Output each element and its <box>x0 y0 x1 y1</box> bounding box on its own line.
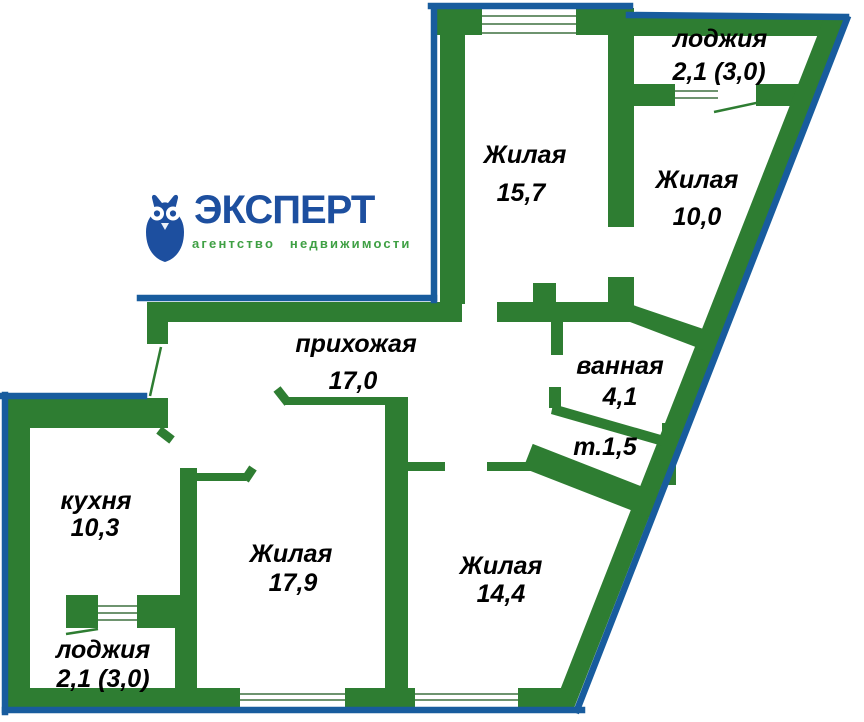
room-name-living-3: Жилая <box>248 540 333 568</box>
room-name-loggia-top: лоджия <box>672 25 768 53</box>
floor-plan-page: ЭКСПЕРТ агентство недвижимости <box>0 0 864 722</box>
room-area-loggia-top: 2,1 (3,0) <box>671 58 765 86</box>
window-living-4 <box>415 688 518 708</box>
room-name-toilet: т.1,5 <box>573 433 638 461</box>
kitchen-balcony-door-swing <box>66 629 98 634</box>
room-labels: Жилая 15,7 лоджия 2,1 (3,0) Жилая 10,0 п… <box>55 25 768 693</box>
room-area-living-4: 14,4 <box>477 580 526 608</box>
room-name-living-1: Жилая <box>482 141 567 169</box>
room-area-bathroom: 4,1 <box>602 383 638 411</box>
window-living-1 <box>482 8 576 35</box>
room-name-bathroom: ванная <box>576 352 664 380</box>
room-area-hallway: 17,0 <box>329 367 378 395</box>
window-living-3 <box>240 688 345 708</box>
window-kitchen <box>98 595 137 628</box>
room-name-living-4: Жилая <box>458 552 543 580</box>
room-name-hallway: прихожая <box>295 330 417 358</box>
room-area-living-1: 15,7 <box>497 179 547 207</box>
room-area-loggia-bottom: 2,1 (3,0) <box>55 665 149 693</box>
room-area-kitchen: 10,3 <box>71 514 120 542</box>
window-loggia-top <box>675 84 718 106</box>
entry-door-swing <box>150 347 161 396</box>
toilet-bottom-wall <box>528 456 656 506</box>
floor-plan-svg: Жилая 15,7 лоджия 2,1 (3,0) Жилая 10,0 п… <box>0 0 864 722</box>
room-area-living-2: 10,0 <box>673 203 722 231</box>
room-name-loggia-bottom: лоджия <box>55 636 151 664</box>
room-name-kitchen: кухня <box>61 487 132 515</box>
room-area-living-3: 17,9 <box>269 569 318 597</box>
room-name-living-2: Жилая <box>654 166 739 194</box>
